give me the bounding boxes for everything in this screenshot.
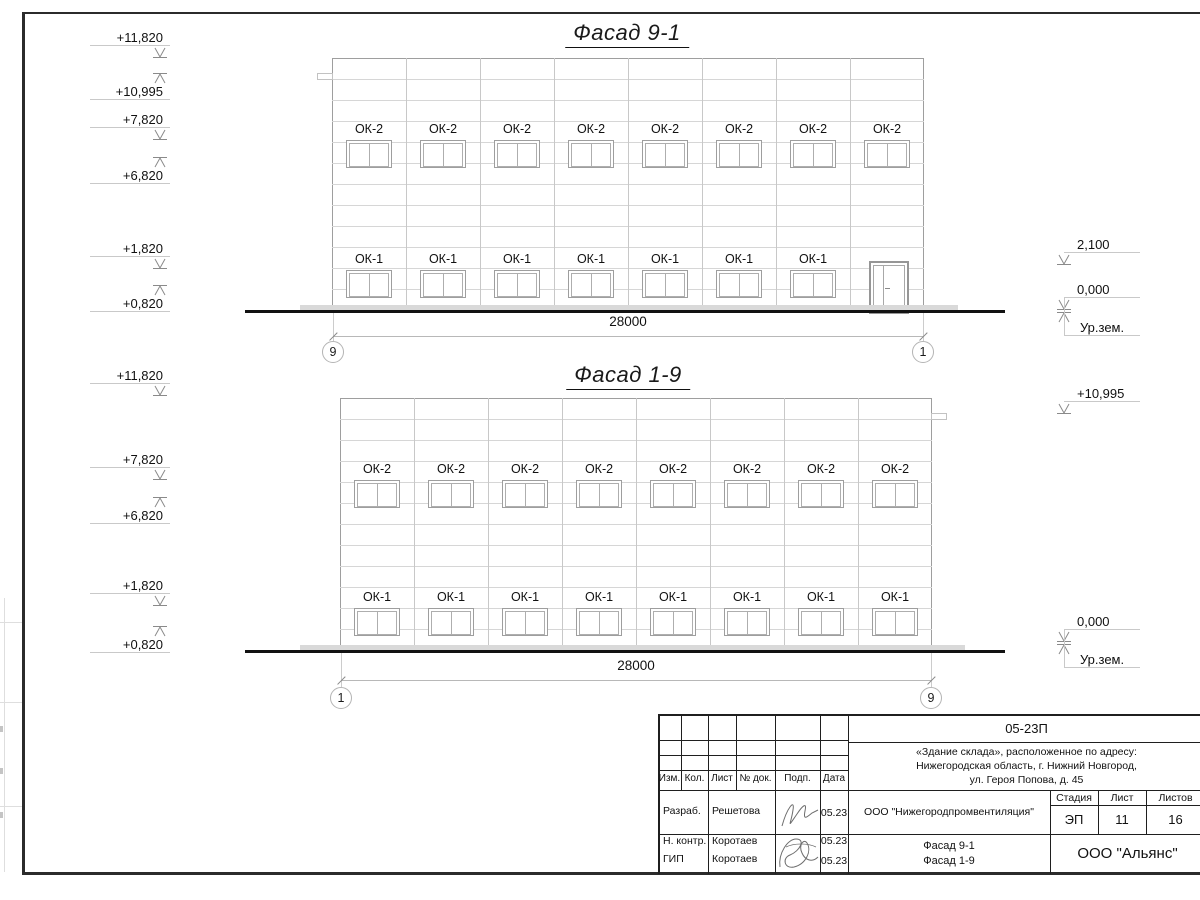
ground-level-label: Ур.зем. bbox=[1080, 652, 1124, 667]
window-label: ОК-1 bbox=[784, 590, 858, 604]
axis-bubble-right: 9 bbox=[920, 687, 942, 709]
tb-stage-value: ЭП bbox=[1050, 812, 1098, 827]
bay-line bbox=[414, 398, 415, 650]
window-label: ОК-1 bbox=[488, 590, 562, 604]
tb-date: 05.23 bbox=[820, 855, 848, 867]
dimension-line bbox=[341, 680, 931, 681]
tb-line bbox=[1050, 805, 1200, 806]
elevation-value: +1,820 bbox=[88, 578, 163, 593]
window bbox=[576, 480, 622, 508]
dimension-text: 28000 bbox=[340, 658, 932, 673]
window bbox=[724, 608, 770, 636]
window bbox=[872, 608, 918, 636]
tb-sheet-label: Лист bbox=[1098, 792, 1146, 804]
elevation-shelf bbox=[1064, 629, 1140, 630]
elevation-shelf bbox=[90, 523, 170, 524]
tb-org-name: ООО "Нижегородпромвентиляция" bbox=[848, 806, 1050, 818]
bay-line bbox=[562, 398, 563, 650]
window bbox=[502, 480, 548, 508]
roof-pipe bbox=[931, 413, 947, 420]
window-label: ОК-1 bbox=[562, 590, 636, 604]
tb-address-line-1: «Здание склада», расположенное по адресу… bbox=[848, 746, 1200, 758]
tb-col-izm: Изм. bbox=[658, 773, 681, 784]
bay-line bbox=[858, 398, 859, 650]
window bbox=[798, 608, 844, 636]
tb-sheets-label: Листов bbox=[1146, 792, 1200, 804]
window bbox=[650, 608, 696, 636]
window bbox=[650, 480, 696, 508]
window-label: ОК-1 bbox=[414, 590, 488, 604]
window bbox=[724, 480, 770, 508]
ground-line bbox=[245, 650, 1005, 653]
drawing-sheet: Фасад 9-1 Фасад 1-9 ОК-2ОК-2ОК-2ОК-2ОК-2… bbox=[0, 0, 1200, 900]
tb-address-line-3: ул. Героя Попова, д. 45 bbox=[848, 774, 1200, 786]
elevation-value: 0,000 bbox=[1077, 614, 1110, 629]
tb-content-line-2: Фасад 1-9 bbox=[848, 855, 1050, 867]
bay-line bbox=[636, 398, 637, 650]
window-label: ОК-2 bbox=[636, 462, 710, 476]
tb-col-data: Дата bbox=[820, 773, 848, 784]
window-label: ОК-2 bbox=[340, 462, 414, 476]
window-label: ОК-1 bbox=[710, 590, 784, 604]
window-label: ОК-2 bbox=[710, 462, 784, 476]
tb-role-razrab: Разраб. bbox=[663, 805, 701, 817]
tb-date: 05.23 bbox=[820, 835, 848, 847]
tb-line bbox=[848, 742, 1200, 743]
tb-col-ndok: № док. bbox=[736, 773, 775, 784]
level-mark-down bbox=[1056, 402, 1072, 420]
tb-company-name: ООО "Альянс" bbox=[1050, 845, 1200, 862]
tb-doc-number: 05-23П bbox=[848, 721, 1200, 736]
tb-stage-label: Стадия bbox=[1050, 792, 1098, 804]
window bbox=[354, 480, 400, 508]
tb-role-nkontr: Н. контр. bbox=[663, 835, 706, 847]
window bbox=[872, 480, 918, 508]
elevation-shelf bbox=[1064, 401, 1140, 402]
window bbox=[576, 608, 622, 636]
tb-name-reshetova: Решетова bbox=[712, 805, 760, 817]
window-label: ОК-1 bbox=[636, 590, 710, 604]
level-mark-up bbox=[152, 624, 168, 642]
window bbox=[354, 608, 400, 636]
tb-line bbox=[708, 714, 709, 874]
tb-date: 05.23 bbox=[820, 807, 848, 819]
signature-scribble-1 bbox=[778, 794, 820, 834]
bay-line bbox=[488, 398, 489, 650]
window bbox=[428, 608, 474, 636]
axis-bubble-left: 1 bbox=[330, 687, 352, 709]
signature-scribble-2 bbox=[774, 833, 822, 875]
tb-col-podp: Подп. bbox=[775, 773, 820, 784]
tb-col-list: Лист bbox=[708, 773, 736, 784]
window-label: ОК-2 bbox=[562, 462, 636, 476]
title-block: Изм. Кол. Лист № док. Подп. Дата Разраб.… bbox=[658, 714, 1200, 874]
window bbox=[798, 480, 844, 508]
tb-role-gip: ГИП bbox=[663, 853, 684, 865]
elevation-shelf bbox=[1064, 667, 1140, 668]
tb-line bbox=[658, 714, 660, 874]
bay-line bbox=[784, 398, 785, 650]
elevation-value: +7,820 bbox=[88, 452, 163, 467]
tb-sheet-value: 11 bbox=[1098, 812, 1146, 827]
elevation-shelf bbox=[90, 652, 170, 653]
window-label: ОК-2 bbox=[414, 462, 488, 476]
tb-col-kol: Кол. bbox=[681, 773, 708, 784]
tb-line bbox=[658, 714, 1200, 716]
window bbox=[428, 480, 474, 508]
bay-line bbox=[710, 398, 711, 650]
window-label: ОК-2 bbox=[858, 462, 932, 476]
window-label: ОК-2 bbox=[488, 462, 562, 476]
level-mark-up bbox=[152, 495, 168, 513]
tb-address-line-2: Нижегородская область, г. Нижний Новгоро… bbox=[848, 760, 1200, 772]
window-label: ОК-1 bbox=[340, 590, 414, 604]
elevation-connector bbox=[1064, 629, 1065, 667]
level-mark-down bbox=[152, 594, 168, 612]
level-mark-down bbox=[152, 384, 168, 402]
tb-sheets-value: 16 bbox=[1146, 812, 1200, 827]
elevation-value: +10,995 bbox=[1077, 386, 1124, 401]
tb-content-line-1: Фасад 9-1 bbox=[848, 840, 1050, 852]
window-label: ОК-2 bbox=[784, 462, 858, 476]
window bbox=[502, 608, 548, 636]
elevation-value: +11,820 bbox=[88, 368, 163, 383]
window-label: ОК-1 bbox=[858, 590, 932, 604]
tb-name-korotaev-2: Коротаев bbox=[712, 853, 757, 865]
tb-name-korotaev-1: Коротаев bbox=[712, 835, 757, 847]
level-mark-down bbox=[152, 468, 168, 486]
